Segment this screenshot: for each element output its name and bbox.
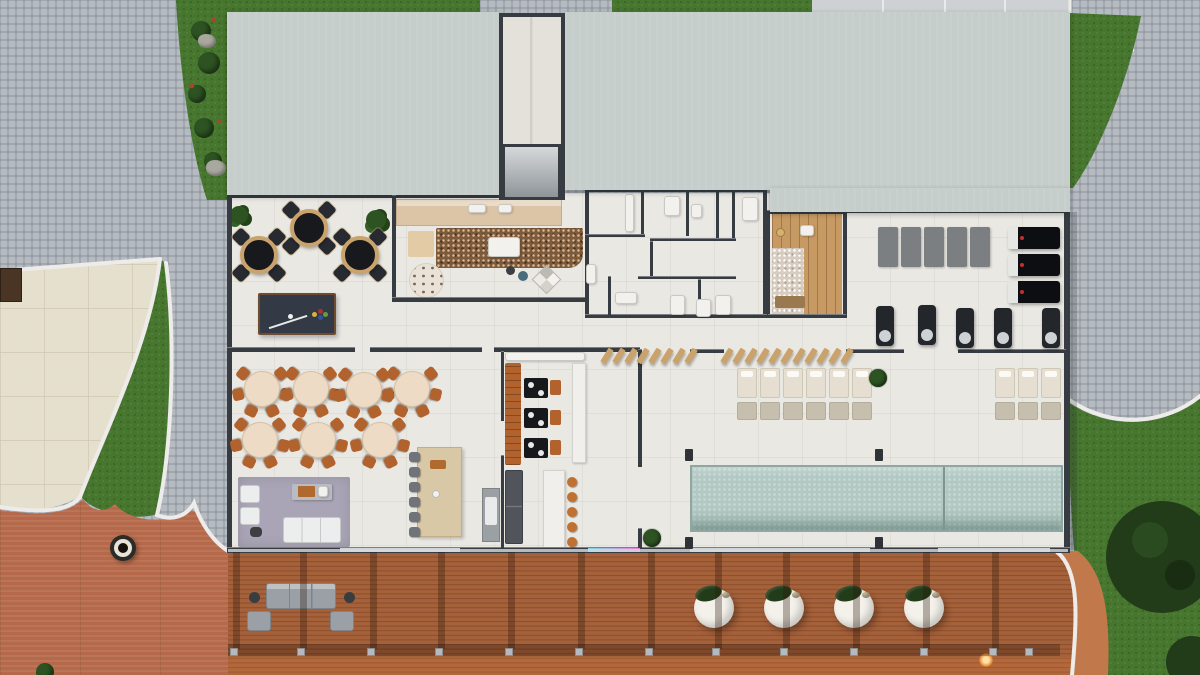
deck-rail-line (228, 549, 1068, 552)
outdoor-sofa (266, 583, 336, 609)
coffee-tray (298, 486, 315, 497)
pouf-blue (518, 271, 528, 281)
cutting-board (430, 460, 446, 469)
roof-right-lower (770, 188, 1070, 212)
refrigerator (505, 470, 523, 544)
pergola-edge-shadow (228, 644, 1060, 656)
sauna-bench (775, 296, 805, 308)
bar-counter (572, 363, 586, 463)
bar-banquette (505, 363, 521, 465)
roof-right (565, 12, 1070, 190)
billiard-table (258, 293, 336, 335)
buffet-dish (498, 204, 512, 213)
kitchen-back-counter (505, 352, 585, 361)
sauna-headrest (800, 225, 814, 236)
topiary-plant (230, 206, 248, 224)
kettle (432, 490, 440, 498)
lounge-armchair (240, 485, 260, 503)
pool-lane-divider (943, 467, 945, 530)
media-cabinet (482, 488, 500, 542)
kitchen-island (543, 470, 565, 550)
entry-corridor (499, 13, 565, 200)
outdoor-armchair (247, 611, 271, 631)
lounge-sofa (283, 517, 341, 543)
topiary-plant (366, 210, 386, 230)
side-table (249, 592, 260, 603)
coffee-books (318, 486, 328, 497)
wood-deck (228, 550, 1076, 675)
floorplan-render (0, 0, 1200, 675)
round-rug (409, 263, 444, 298)
buffet-table (488, 237, 520, 257)
fire-pit (110, 535, 136, 561)
side-table (344, 592, 355, 603)
pouf (250, 527, 262, 537)
outdoor-armchair (330, 611, 354, 631)
buffet-mat (408, 231, 434, 257)
buffet-dish (468, 204, 486, 213)
pouf-dark (506, 266, 515, 275)
roof-left (227, 12, 499, 195)
building-shadow-right (1070, 212, 1077, 550)
sauna-bucket (776, 228, 785, 237)
swimming-pool (690, 465, 1063, 532)
side-roof-left-edge (0, 268, 22, 302)
terracotta-patio (0, 499, 228, 675)
entry-skylight (502, 144, 561, 200)
lounge-armchair (240, 507, 260, 525)
deck-sun-strip (228, 657, 1073, 675)
